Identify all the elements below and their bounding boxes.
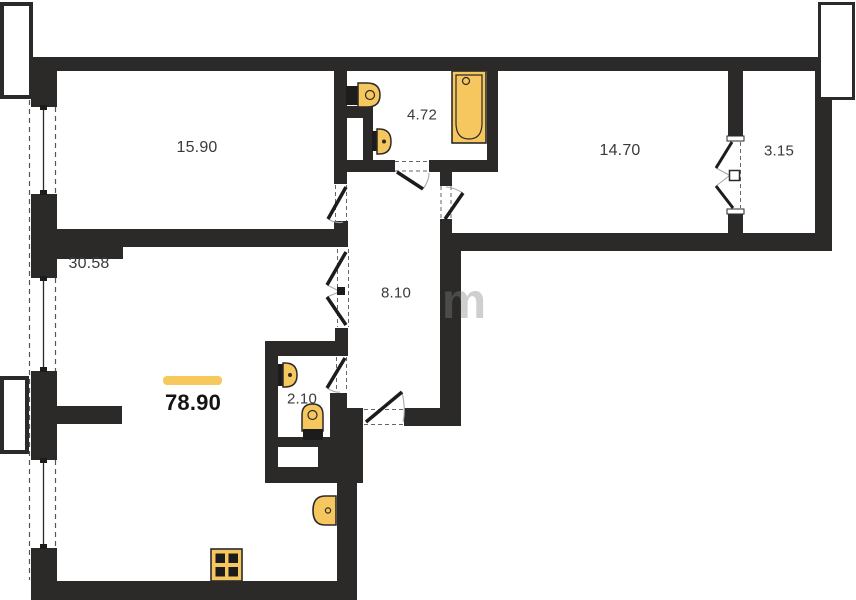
wall-left-pier-2 <box>31 194 57 278</box>
room-label-hallway: 8.10 <box>381 285 411 302</box>
door-bedroom-top-left <box>328 185 347 223</box>
wall-south-room-right <box>450 233 832 251</box>
wall-hall-west-lower-pier <box>335 328 348 356</box>
bathtub-icon <box>452 71 486 143</box>
wall-hall-west-pier <box>334 221 348 247</box>
room-label-living-kitchen: 30.58 <box>68 255 109 273</box>
room-label-bathroom: 4.72 <box>407 107 437 124</box>
wall-hall-bottom-right-pier <box>404 408 460 426</box>
window-2 <box>40 276 56 372</box>
wall-left-pier-1 <box>31 57 57 107</box>
window-handle-icon <box>730 171 740 181</box>
balcony-outline-mid-left <box>0 376 29 454</box>
wall-hall-bottom-left-pier <box>347 408 363 483</box>
wall-hall-east-upper <box>440 170 452 186</box>
sink-icon-kitchen <box>313 496 336 525</box>
wall-left-stub <box>57 406 122 424</box>
room-label-balcony: 3.15 <box>764 143 794 160</box>
sink-icon-bathroom <box>372 129 391 154</box>
door-wc <box>327 357 347 392</box>
wall-wc-left <box>265 341 278 483</box>
wall-top <box>33 57 830 71</box>
total-area-label: 78.90 <box>165 390 221 416</box>
door-living-double <box>327 249 349 327</box>
window-1 <box>40 105 56 195</box>
room-label-wc: 2.10 <box>287 391 317 408</box>
window-3 <box>40 458 56 549</box>
wall-bath-south-left <box>334 160 395 172</box>
total-area-accent-bar <box>163 376 222 385</box>
wall-living-north <box>57 229 348 247</box>
toilet-icon-bathroom <box>346 83 380 107</box>
wall-bath-east <box>487 71 498 165</box>
wall-wc-right <box>330 393 347 467</box>
sink-icon-wc <box>278 363 297 387</box>
wall-bath-niche-stub <box>363 117 373 162</box>
room-label-bedroom-top-left: 15.90 <box>176 139 217 157</box>
wall-balcony-partition-upper <box>728 71 743 141</box>
balcony-outline-top-right <box>818 2 855 100</box>
wall-hall-east <box>440 233 461 426</box>
wall-bottom <box>31 581 357 600</box>
toilet-icon-wc <box>302 404 323 440</box>
wall-wc-divider <box>275 437 337 447</box>
door-bedroom-right <box>441 186 463 219</box>
room-label-bedroom-right: 14.70 <box>599 142 640 160</box>
watermark: m <box>442 276 486 326</box>
door-bathroom <box>395 162 429 190</box>
balcony-outline-top-left <box>0 2 33 99</box>
floor-plan-canvas: 15.90 4.72 14.70 3.15 30.58 8.10 2.10 78… <box>0 0 856 600</box>
stove-icon <box>211 549 242 581</box>
door-hall-bottom <box>364 392 404 425</box>
wall-left-pier-3 <box>31 371 57 460</box>
balcony-door-window <box>716 136 744 214</box>
wall-wc-bottom <box>265 467 348 483</box>
wall-balcony-partition-lower <box>728 210 743 251</box>
